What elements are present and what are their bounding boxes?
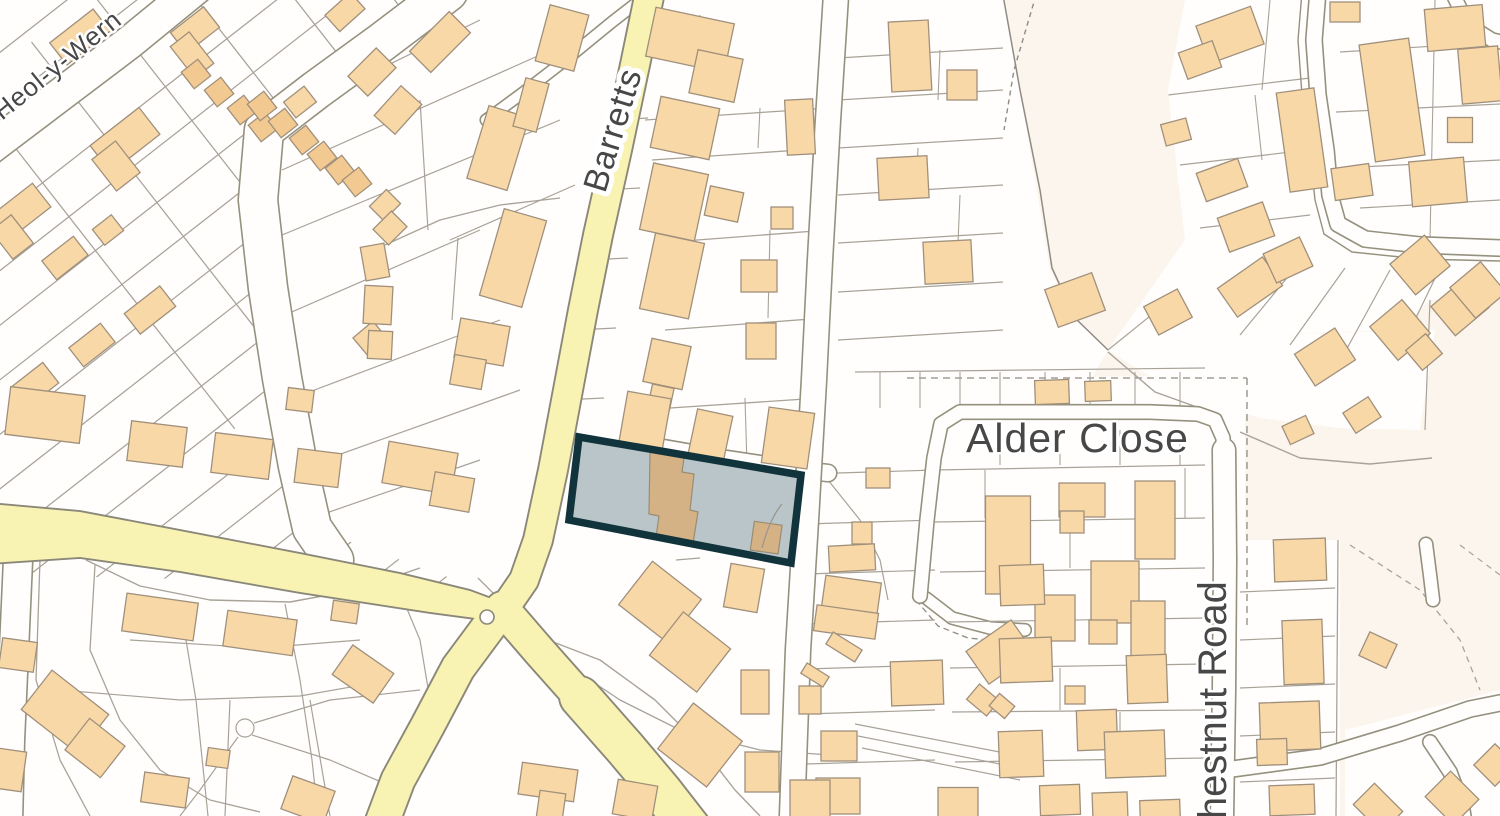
svg-text:Chestnut Road: Chestnut Road <box>1191 581 1235 816</box>
svg-text:Alder Close: Alder Close <box>966 415 1189 461</box>
